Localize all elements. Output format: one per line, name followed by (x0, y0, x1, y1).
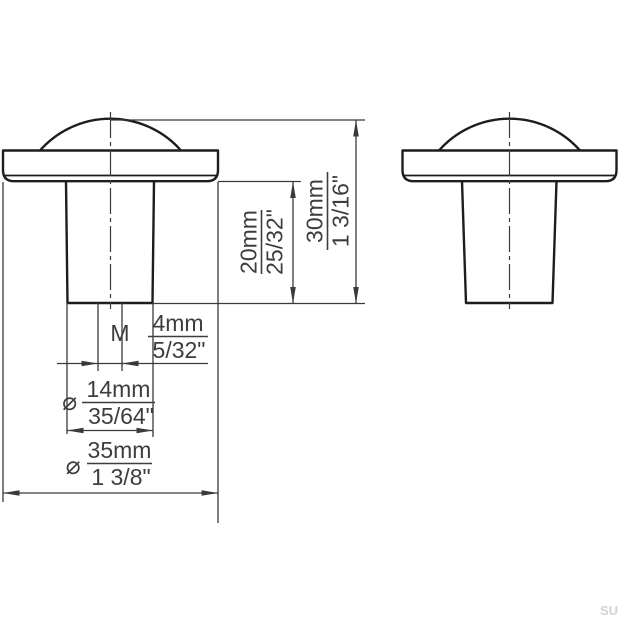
stem-height-metric-label: 20mm (236, 210, 262, 274)
thread-imperial-label: 5/32" (153, 337, 206, 363)
dimension-lines (3, 120, 359, 496)
arrowhead (290, 287, 296, 304)
diameter-symbol: ⌀ (65, 452, 80, 480)
diameter-symbol: ⌀ (61, 388, 76, 416)
arrowhead (290, 182, 296, 199)
thread-prefix-label: M (110, 320, 129, 346)
label-stem-height: 20mm 25/32" (236, 209, 288, 275)
label-thread: M 4mm 5/32" (110, 310, 208, 363)
arrowhead (202, 490, 219, 496)
label-total-height: 30mm 1 3/16" (302, 172, 354, 250)
arrowhead (353, 120, 359, 137)
arrowhead (67, 428, 84, 434)
front-view (3, 112, 218, 309)
arrowhead (82, 361, 99, 367)
dimension-labels: 20mm 25/32" 30mm 1 3/16" M 4mm 5/32" ⌀ 1… (61, 172, 353, 490)
total-height-imperial-label: 1 3/16" (328, 175, 354, 247)
label-neck-diameter: ⌀ 14mm 35/64" (61, 376, 155, 429)
side-view (403, 112, 617, 309)
neck-diameter-metric-label: 14mm (87, 376, 151, 402)
neck-diameter-imperial-label: 35/64" (88, 403, 154, 429)
label-cap-diameter: ⌀ 35mm 1 3/8" (65, 437, 152, 490)
watermark-text: SU (600, 603, 618, 618)
thread-metric-label: 4mm (152, 310, 203, 336)
arrowhead (353, 287, 359, 304)
knob-dimension-drawing: 20mm 25/32" 30mm 1 3/16" M 4mm 5/32" ⌀ 1… (0, 0, 620, 620)
technical-drawing-canvas: 20mm 25/32" 30mm 1 3/16" M 4mm 5/32" ⌀ 1… (0, 0, 620, 620)
cap-diameter-metric-label: 35mm (88, 437, 152, 463)
arrowhead (3, 490, 20, 496)
total-height-metric-label: 30mm (302, 179, 328, 243)
stem-height-imperial-label: 25/32" (262, 209, 288, 275)
arrowhead (122, 361, 139, 367)
cap-diameter-imperial-label: 1 3/8" (91, 464, 150, 490)
